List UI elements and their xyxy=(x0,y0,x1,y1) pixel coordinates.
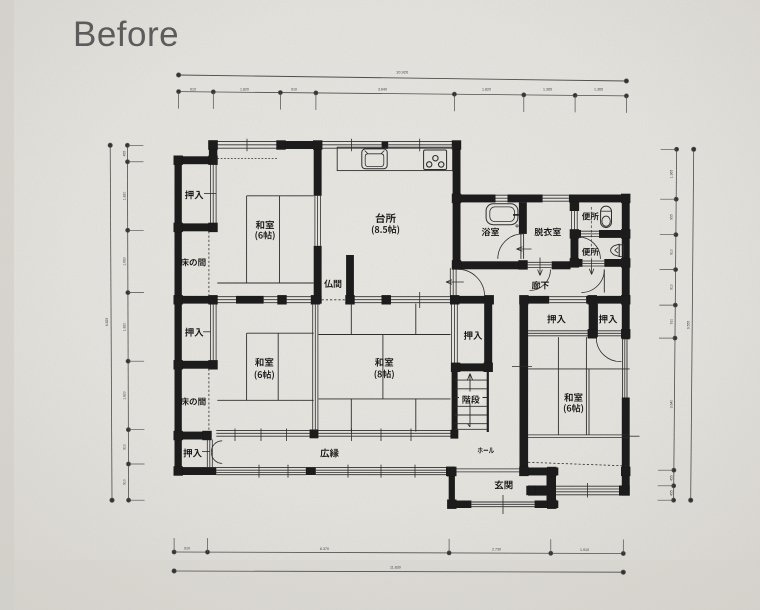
svg-text:Before: Before xyxy=(73,15,179,54)
svg-text:910: 910 xyxy=(670,249,674,255)
svg-text:1.660: 1.660 xyxy=(122,257,126,266)
svg-text:455: 455 xyxy=(670,475,674,481)
svg-text:6.370: 6.370 xyxy=(320,547,329,551)
svg-text:910: 910 xyxy=(670,284,674,290)
svg-text:11.830: 11.830 xyxy=(390,566,401,570)
svg-text:1.820: 1.820 xyxy=(240,88,249,92)
svg-text:1.910: 1.910 xyxy=(580,548,589,552)
svg-text:1.365: 1.365 xyxy=(594,88,603,92)
svg-text:1.365: 1.365 xyxy=(670,170,674,179)
svg-text:3.640: 3.640 xyxy=(670,400,674,409)
svg-text:2.730: 2.730 xyxy=(492,548,501,552)
svg-text:910: 910 xyxy=(190,88,196,92)
svg-text:3.640: 3.640 xyxy=(378,88,387,92)
svg-text:10.920: 10.920 xyxy=(396,70,409,75)
svg-text:910: 910 xyxy=(670,319,674,325)
svg-text:455: 455 xyxy=(122,151,126,157)
svg-text:1.820: 1.820 xyxy=(122,391,126,400)
svg-text:1.365: 1.365 xyxy=(543,88,552,92)
svg-text:1.820: 1.820 xyxy=(122,192,126,201)
svg-text:1.820: 1.820 xyxy=(482,88,491,92)
svg-text:910: 910 xyxy=(122,444,126,450)
svg-text:6.825: 6.825 xyxy=(105,318,109,327)
svg-text:910: 910 xyxy=(184,547,190,551)
svg-text:955: 955 xyxy=(670,214,674,220)
svg-text:455: 455 xyxy=(670,490,674,496)
svg-text:9.555: 9.555 xyxy=(687,321,691,330)
svg-text:910: 910 xyxy=(291,88,297,92)
svg-text:910: 910 xyxy=(122,479,126,485)
svg-text:1.820: 1.820 xyxy=(122,323,126,332)
